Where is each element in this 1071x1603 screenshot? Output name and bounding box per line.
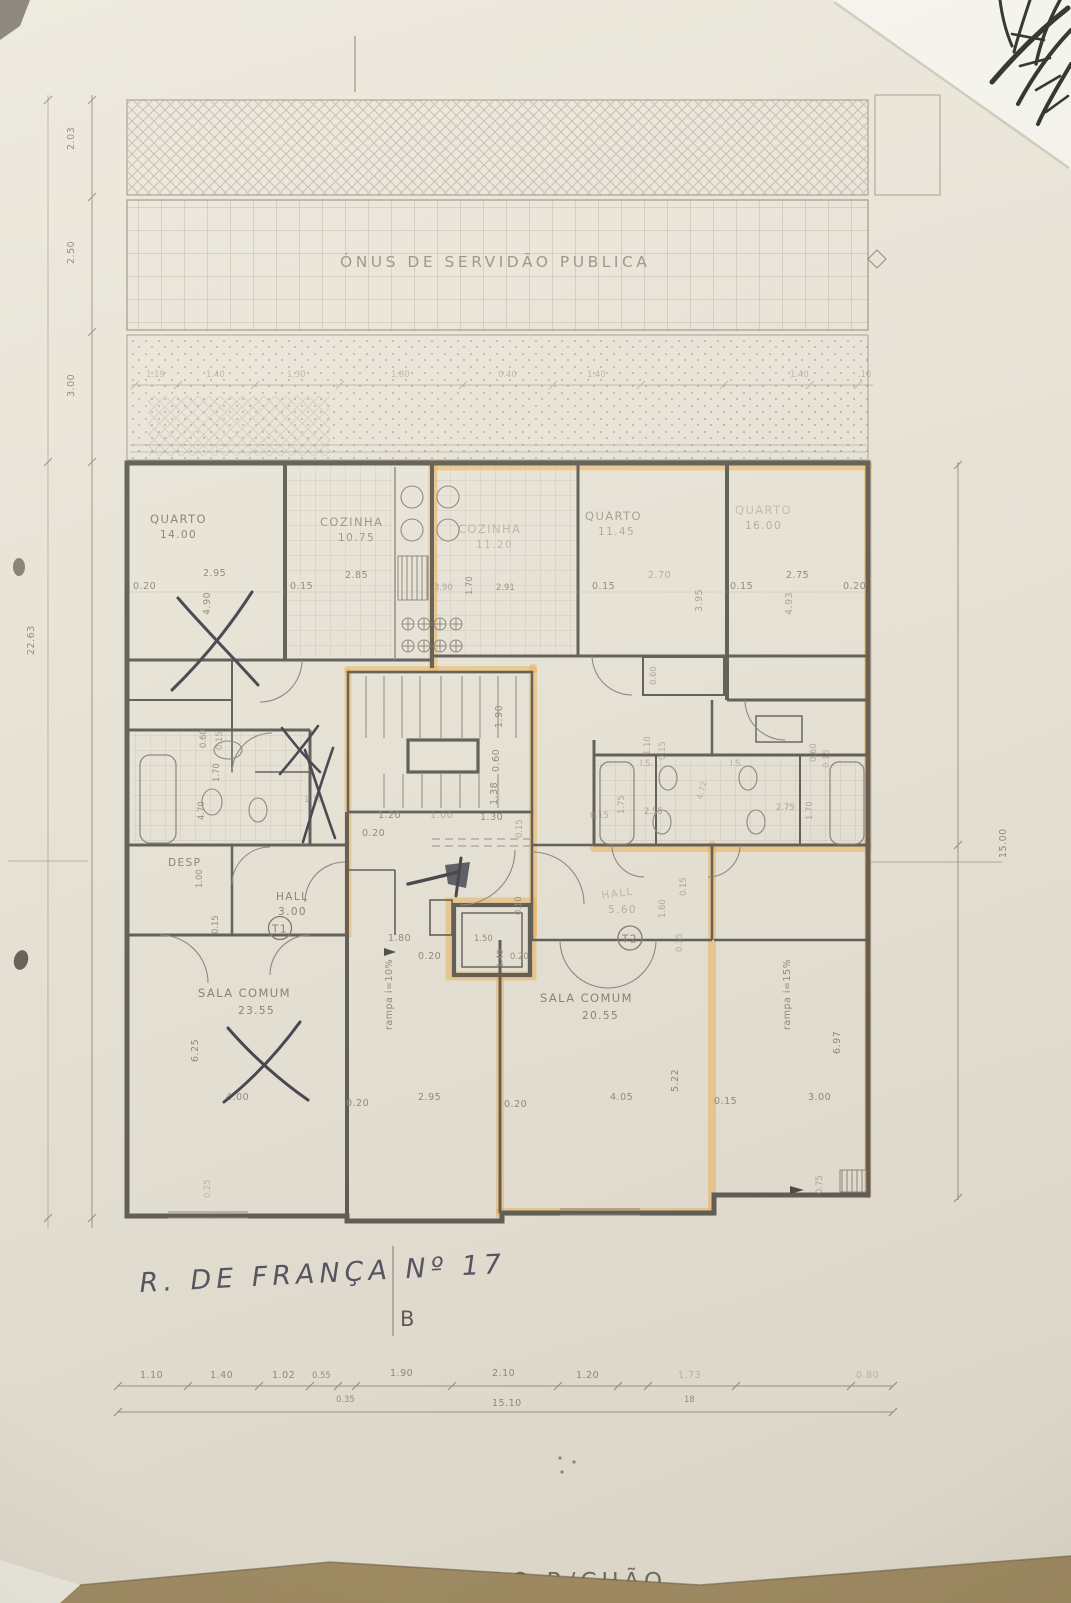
dim-label: 4.70 [196, 801, 206, 820]
section-letter: B [400, 1307, 414, 1331]
dim-label: 1.40 [206, 369, 225, 379]
dim-label: 0.40 [498, 369, 517, 379]
dim-label: 0.15 [592, 581, 615, 592]
room-cozinha1-area: 10.75 [338, 532, 375, 544]
dim-label: 0.20 [346, 1098, 369, 1109]
dim-label: 1.70 [211, 763, 221, 782]
dim-label: 0.20 [510, 951, 529, 961]
dim-label: 3.00 [808, 1092, 831, 1103]
dim-label: 0.20 [843, 581, 866, 592]
dim-label: 1.80 [391, 369, 410, 379]
room-hall1-name: HALL [276, 891, 308, 903]
dim-label: 2.75 [786, 570, 809, 581]
dim-label: 1.10 [140, 1370, 163, 1381]
dim-label: 0.20 [418, 951, 441, 962]
hob-icon [401, 519, 423, 541]
edge-spot [12, 949, 31, 972]
dim-label: 1.70 [804, 801, 814, 820]
hob-icon [401, 486, 423, 508]
room-hall2-name: HALL [601, 886, 635, 902]
servitude-label: ÓNUS DE SERVIDÃO PUBLICA [340, 252, 650, 271]
dim-label: 0.55 [312, 1370, 331, 1380]
ramp15-label: rampa i=15% [782, 959, 793, 1030]
dim-label: 1.19 [146, 369, 165, 379]
dim-label: 0.15 [714, 1096, 737, 1107]
room-cozinha2-area: 11.20 [476, 539, 513, 551]
dots-patch-right [690, 398, 865, 456]
side-box [875, 95, 940, 195]
dim-label: 4.90 [202, 592, 213, 615]
hatch-patch-left [148, 396, 330, 456]
dim-label-total: 15.10 [492, 1398, 522, 1409]
dim-label: 2.50 [66, 241, 77, 264]
dim-label: 0.15 [730, 581, 753, 592]
dim-label: 1.50 [474, 933, 493, 943]
hatched-band [127, 100, 868, 195]
dim-label: 1.38 [489, 782, 500, 805]
table-surface [60, 1556, 1071, 1603]
room-desp-name: DESP [168, 857, 201, 869]
blueprint-photo: ÓNUS DE SERVIDÃO PUBLICA 1.19 1.40 1.30 … [0, 0, 1071, 1603]
dim-label: 1.60 [657, 899, 667, 918]
dim-label: 0.25 [202, 1179, 212, 1198]
dim-label: 0.20 [133, 581, 156, 592]
dim-label: 6.97 [832, 1031, 843, 1054]
dim-label: 0.60 [648, 666, 658, 685]
dim-label: 2.55 [644, 806, 663, 816]
room-quarto2-name: QUARTO [585, 509, 642, 523]
dim-label: 4.05 [610, 1092, 633, 1103]
room-quarto3-name: QUARTO [735, 503, 792, 517]
dim-label: 2.03 [66, 127, 77, 150]
dim-label: 1.00 [430, 810, 453, 821]
dim-label: 1.10 [642, 736, 652, 755]
room-cozinha1-name: COZINHA [320, 515, 383, 529]
dim-label: 1.75 [616, 795, 626, 814]
bottom-dimension-rows: 1.10 1.40 1.02 0.55 1.90 2.10 1.20 1.73 … [114, 1368, 897, 1416]
room-sala1-area: 23.55 [238, 1005, 275, 1017]
dim-label: 0.15 [821, 749, 831, 768]
dim-label: 0.15 [674, 933, 684, 952]
section-and-title: B PLANTA DO R/CHÃO [358, 1246, 667, 1595]
dim-label: 18 [684, 1394, 695, 1404]
dim-label: 2.95 [203, 568, 226, 579]
dim-label: 0.10 [513, 896, 523, 915]
dim-label: 1.30 [287, 369, 306, 379]
dim-label-right-total: 15.00 [998, 828, 1009, 858]
room-sala2-area: 20.55 [582, 1010, 619, 1022]
dim-label: 1.90 [390, 1368, 413, 1379]
dim-label: 0.15 [290, 581, 313, 592]
servitude-bands: ÓNUS DE SERVIDÃO PUBLICA [127, 36, 940, 460]
dim-label: 1.73 [678, 1370, 701, 1381]
dim-label: 3.00 [66, 374, 77, 397]
dim-label: 1.00 [194, 869, 204, 888]
dim-label: 6.25 [190, 1039, 201, 1062]
room-hall2-area: 5.60 [608, 904, 637, 916]
dim-label: 3.90 [434, 582, 453, 592]
dim-label: 0.20 [362, 828, 385, 839]
edge-spot [13, 558, 25, 576]
corner-shadow [0, 0, 30, 40]
room-cozinha2-name: COZINHA [458, 522, 521, 536]
room-quarto3-area: 16.00 [745, 520, 782, 532]
dim-label: 1.40 [495, 949, 505, 968]
dim-label: 3.95 [694, 589, 705, 612]
dim-label: 0.15 [657, 741, 667, 760]
dim-label: 22.63 [26, 625, 37, 655]
apartment-t1-label: T1 [271, 924, 288, 936]
dim-label: 1.70 [464, 576, 474, 595]
ramp10-label: rampa i=10% [384, 959, 395, 1030]
dim-label: 0.15 [514, 819, 524, 838]
dim-label: 0.15 [678, 877, 688, 896]
room-is2-name: I.S. [730, 758, 743, 768]
dim-label: 2.85 [345, 570, 368, 581]
diamond-mark [868, 250, 886, 268]
dim-label: 2.91 [496, 582, 515, 592]
dim-label: 0.20 [504, 1099, 527, 1110]
room-quarto1-name: QUARTO [150, 512, 207, 526]
dim-label: 1.40 [210, 1370, 233, 1381]
dim-label: 0.15 [210, 915, 220, 934]
dim-label: 4.93 [784, 592, 795, 615]
dim-label: 2.75 [776, 802, 795, 812]
room-quarto1-area: 14.00 [160, 529, 197, 541]
dim-label: 1.20 [378, 810, 401, 821]
room-sala1-name: SALA COMUM [198, 986, 291, 1000]
dim-label: 1.80 [388, 933, 411, 944]
dim-label: 2.70 [648, 570, 671, 581]
direction-arrow [384, 948, 396, 956]
dim-label: 1.40 [587, 369, 606, 379]
hatched-step [840, 1170, 866, 1192]
floorplan-drawing: ÓNUS DE SERVIDÃO PUBLICA 1.19 1.40 1.30 … [0, 0, 1071, 1603]
dim-label: 0.75 [814, 1175, 824, 1194]
dim-label: 0.60 [808, 743, 818, 762]
dim-label: 0.60 [198, 729, 208, 748]
room-quarto2-area: 11.45 [598, 526, 635, 538]
dim-label: 0.60 [491, 749, 502, 772]
apartment-t2-label: T2 [621, 934, 638, 946]
dim-label: 2.10 [492, 1368, 515, 1379]
dim-label: 1.30 [480, 812, 503, 823]
dim-label: 5.22 [670, 1069, 681, 1092]
dim-label: 0.35 [336, 1394, 355, 1404]
dim-label: 1.90 [494, 705, 505, 728]
dim-label: 1.40 [790, 369, 809, 379]
dim-label: 1.20 [576, 1370, 599, 1381]
dim-label: .10 [858, 369, 871, 379]
sink-unit [398, 556, 428, 600]
room-sala2-name: SALA COMUM [540, 991, 633, 1005]
room-is1-name: I.S. [640, 758, 653, 768]
dim-label: 0.15 [214, 731, 224, 750]
dim-label: 2.95 [418, 1092, 441, 1103]
dim-label: 1.02 [272, 1370, 295, 1381]
dim-label: 0.15 [590, 810, 609, 820]
handwritten-address: R. DE FRANÇA Nº 17 [139, 1249, 507, 1299]
dim-label: 0.80 [856, 1370, 879, 1381]
